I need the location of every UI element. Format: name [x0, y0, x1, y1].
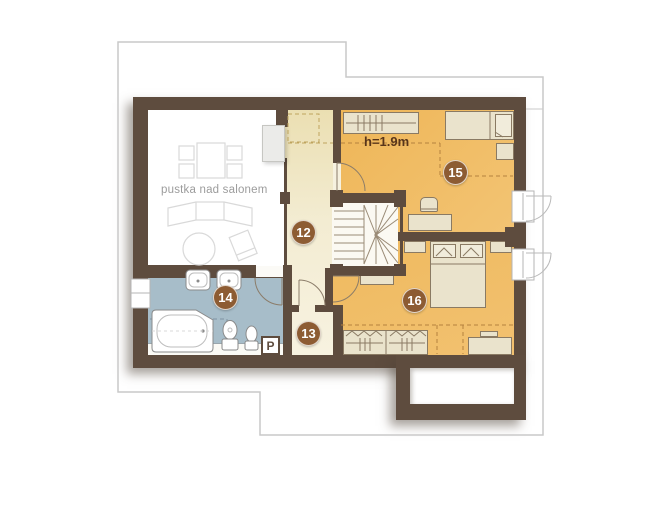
balustrade-post [280, 192, 290, 204]
door-opening-bathroom [256, 266, 283, 277]
washing-machine: P [261, 336, 280, 355]
wall-corridor-room15 [333, 110, 341, 163]
wall-bathroom-top [148, 265, 256, 278]
badge-room-14: 14 [213, 285, 238, 310]
wall-room13-top-right [315, 305, 333, 312]
stairs-corner-tl [330, 190, 343, 207]
void-label: pustka nad salonem [161, 184, 276, 196]
ceiling-height-label: h=1.9m [364, 134, 409, 149]
dresser [468, 337, 512, 355]
door-opening-room15 [333, 163, 341, 190]
wardrobe-room16 [343, 330, 428, 355]
badge-room-16-label: 16 [407, 293, 421, 308]
pillow-single-bed [495, 114, 512, 137]
badge-room-13: 13 [296, 321, 321, 346]
desk-chair [420, 197, 438, 212]
balustrade-line [284, 158, 287, 265]
badge-room-14-label: 14 [218, 290, 232, 305]
notch-void [410, 368, 514, 404]
pillow-right [460, 244, 483, 258]
nightstand-room15 [496, 143, 514, 160]
floor-plan: 12 13 14 15 16 pustka nad salonem h=1.9m… [0, 0, 662, 520]
dresser-knob [480, 331, 498, 337]
badge-room-16: 16 [402, 288, 427, 313]
wardrobe-room15 [343, 112, 419, 134]
nightstand-left [404, 241, 426, 253]
pillow-left [433, 244, 456, 258]
wall-room13-right [333, 305, 343, 355]
badge-room-12: 12 [291, 220, 316, 245]
badge-room-13-label: 13 [301, 326, 315, 341]
stairs-floor [332, 203, 398, 266]
chimney [262, 125, 285, 162]
badge-room-15-label: 15 [448, 165, 462, 180]
badge-room-12-label: 12 [296, 225, 310, 240]
wall-room13-top-left [292, 305, 299, 312]
washing-machine-label: P [266, 339, 274, 353]
desk [408, 214, 452, 231]
badge-room-15: 15 [443, 160, 468, 185]
wall-divider-end-block [505, 227, 514, 247]
wall-bathroom-corridor [283, 265, 292, 355]
wall-room15-room16 [398, 232, 514, 241]
